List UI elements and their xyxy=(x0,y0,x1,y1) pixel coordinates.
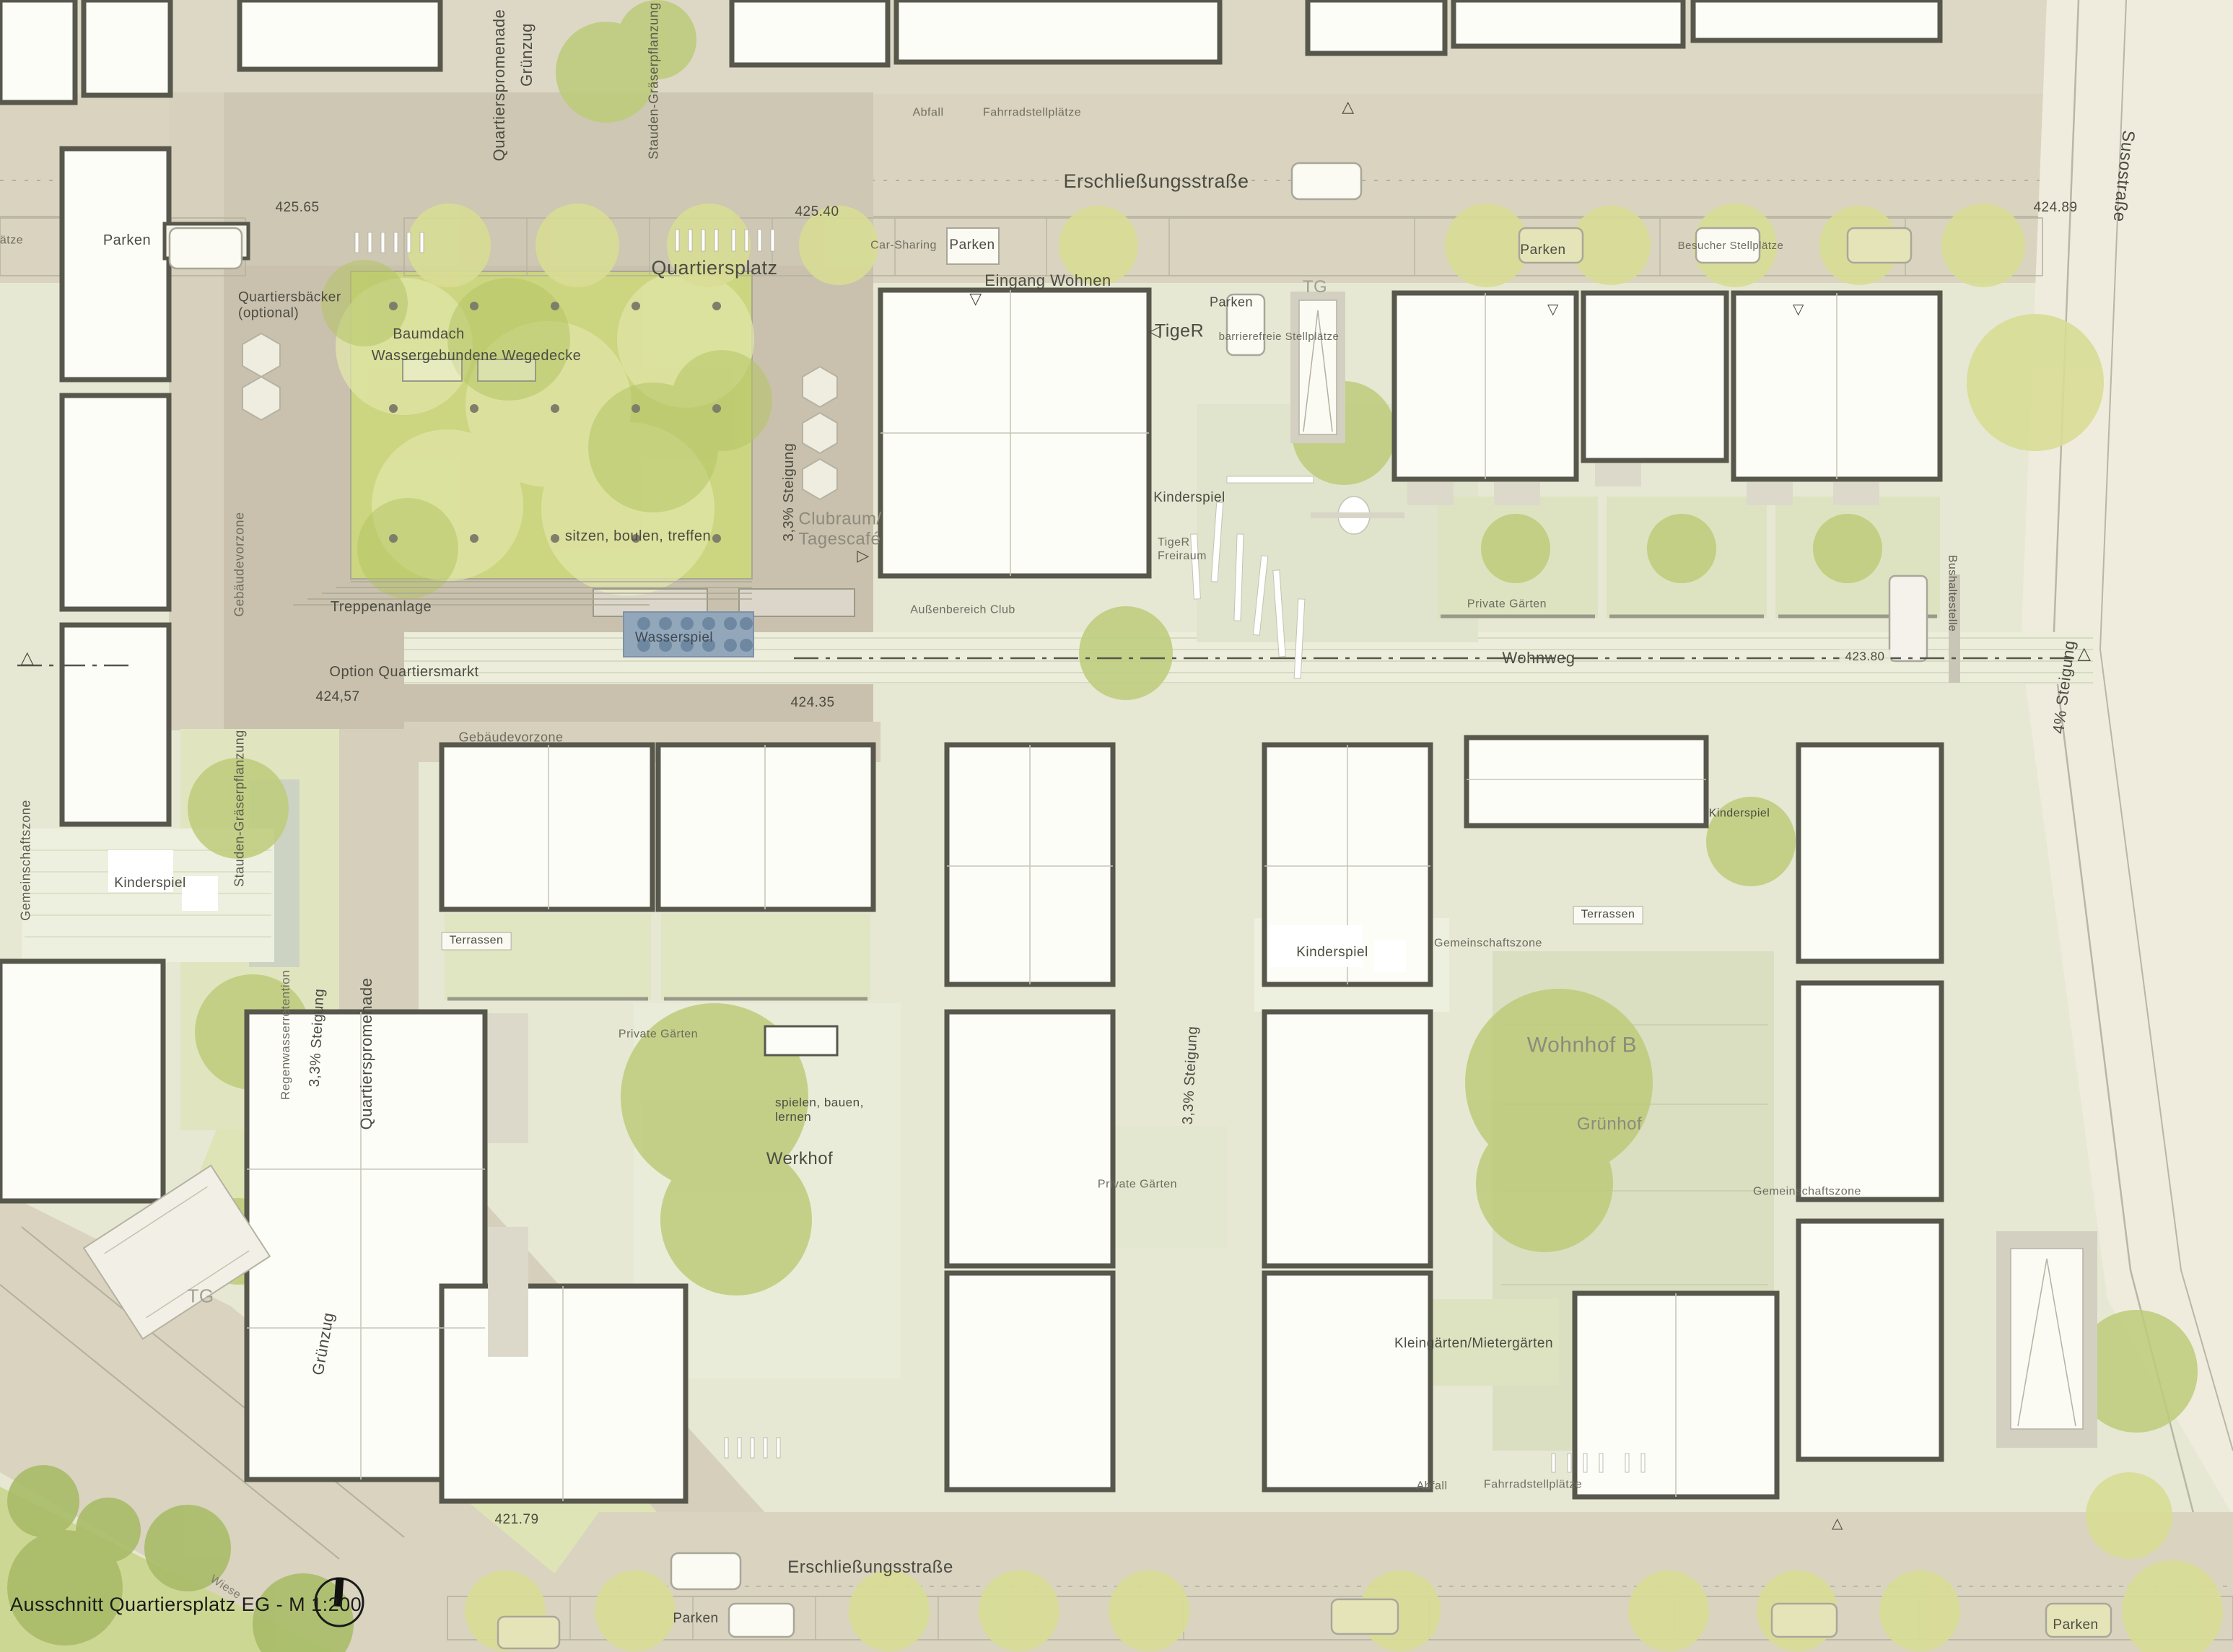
bus-stop-platform xyxy=(1949,574,1960,683)
van-street-top xyxy=(1292,163,1361,199)
car-barrier-free xyxy=(1227,294,1264,355)
drawing-caption: Ausschnitt Quartiersplatz EG - M 1:200 xyxy=(10,1594,362,1616)
van-parked xyxy=(170,228,242,268)
plan-graphics xyxy=(0,0,2233,1652)
gebaeudevorzone-strip xyxy=(169,92,224,730)
site-plan: ErschließungsstraßeParkenätzeQuartiersbä… xyxy=(0,0,2233,1652)
parken-bay-box xyxy=(947,228,999,264)
car-street-bottom xyxy=(671,1553,740,1589)
bus-at-stop xyxy=(1889,576,1927,661)
